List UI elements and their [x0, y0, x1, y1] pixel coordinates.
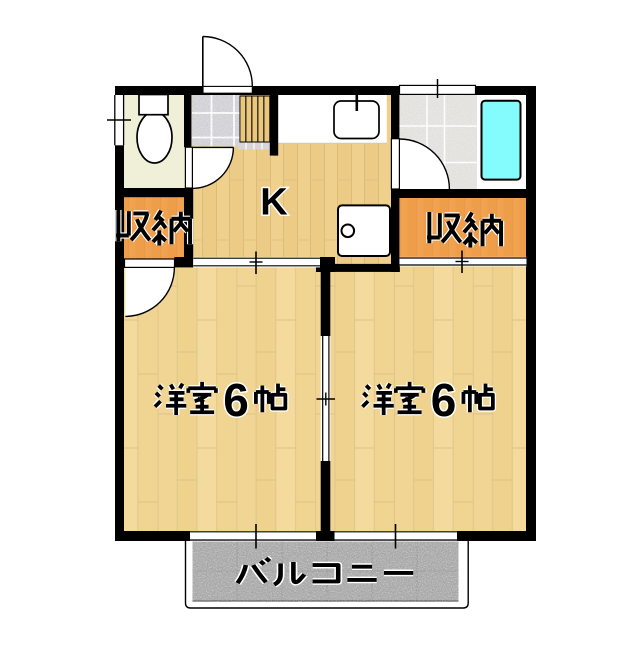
svg-text:6: 6 — [431, 374, 457, 426]
svg-text:K: K — [260, 182, 288, 224]
svg-text:6: 6 — [223, 374, 249, 426]
